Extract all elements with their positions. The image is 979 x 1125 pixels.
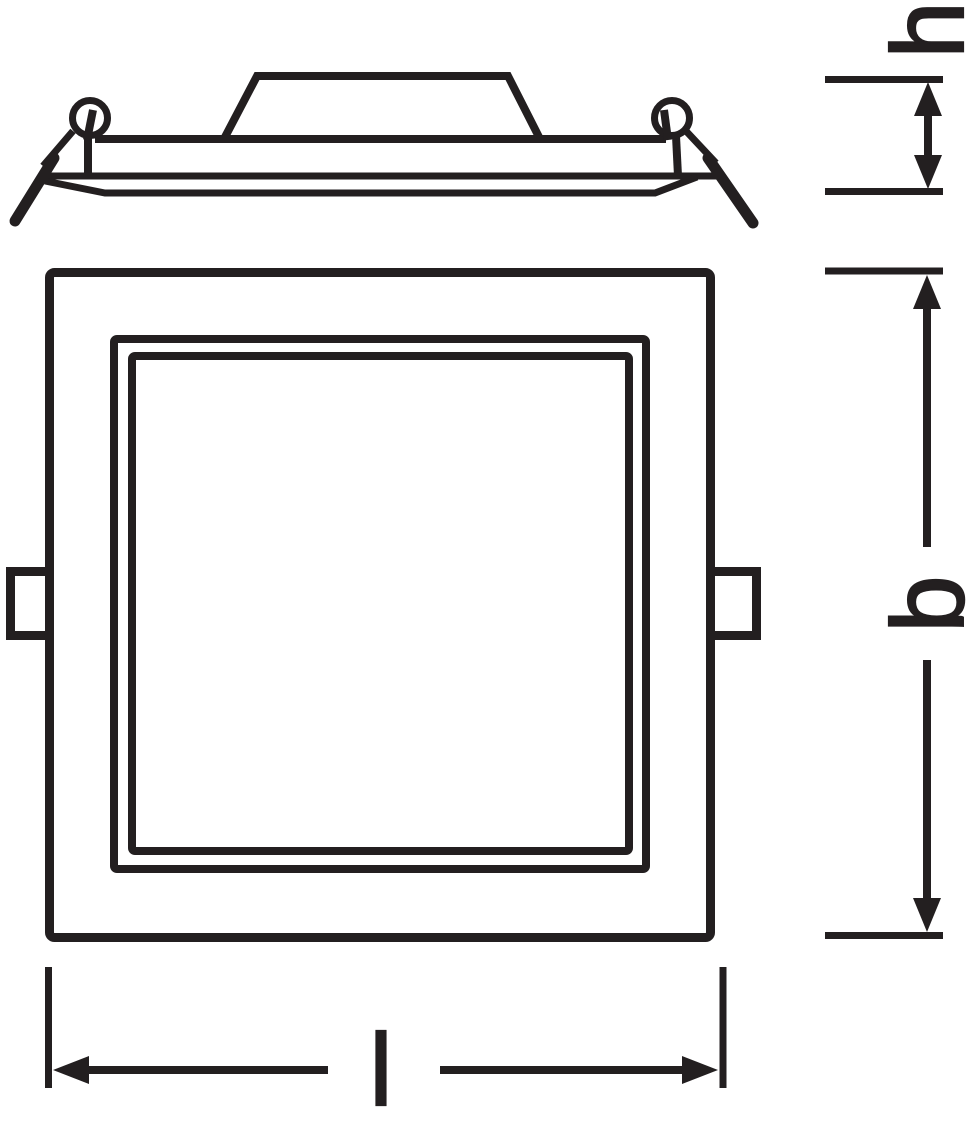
dimension-b: b xyxy=(825,271,979,936)
right-spring-handle xyxy=(708,158,753,223)
side-view xyxy=(15,76,753,223)
dimension-label-b: b xyxy=(871,576,979,633)
right-spring-coil-wire xyxy=(664,110,668,140)
driver-housing-outline xyxy=(225,76,539,137)
panel-right-edge xyxy=(676,136,678,176)
right-spring-clip xyxy=(655,101,754,224)
left-spring-handle xyxy=(15,158,54,221)
dimension-label-l: l xyxy=(370,1013,393,1125)
panel-bezel-frame xyxy=(114,339,646,869)
dimension-drawing-canvas: h b l xyxy=(0,0,979,1125)
b-arrowhead-down xyxy=(913,898,941,932)
right-spring-coil xyxy=(655,101,690,136)
panel-light-surface xyxy=(132,356,629,851)
b-arrowhead-up xyxy=(913,275,941,309)
right-mounting-tab xyxy=(711,572,757,636)
front-view xyxy=(11,273,757,938)
dimension-l: l xyxy=(49,967,724,1125)
dimension-h: h xyxy=(825,2,979,192)
l-arrowhead-left xyxy=(53,1056,89,1084)
left-spring-clip xyxy=(15,101,108,222)
dimension-label-h: h xyxy=(871,2,979,59)
h-arrowhead-up xyxy=(914,82,942,116)
left-mounting-tab xyxy=(11,572,50,636)
led-downlight-dimension-drawing: h b l xyxy=(0,0,979,1125)
h-arrowhead-down xyxy=(914,155,942,189)
panel-outer-frame xyxy=(50,273,711,938)
l-arrowhead-right xyxy=(682,1056,718,1084)
